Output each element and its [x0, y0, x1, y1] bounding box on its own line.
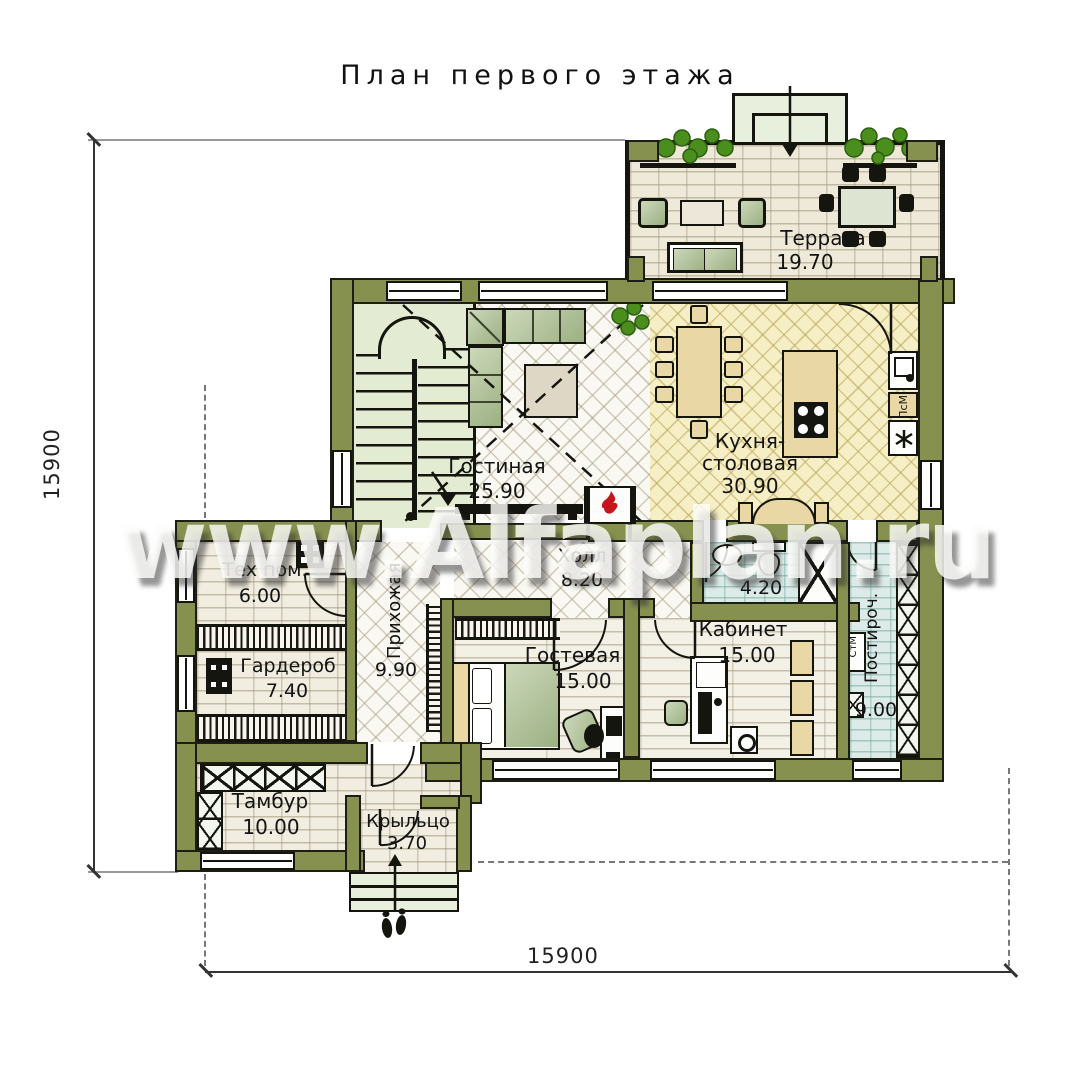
room-label-porch: Крыльцо [358, 812, 458, 832]
window [200, 852, 295, 870]
page-title: План первого этажа [340, 60, 739, 91]
fridge [888, 420, 918, 456]
entry-arrow-icon [386, 852, 404, 912]
room-label-kitchen-line1: Кухня- [675, 430, 825, 452]
wall-guest-study [623, 598, 640, 758]
dishwasher-label: ПсМ [897, 395, 910, 419]
room-label-guest: Гостевая [505, 644, 640, 666]
study-desk [690, 656, 728, 744]
terrace-pillar [920, 256, 938, 282]
wall-porch-west [345, 795, 361, 872]
terrace-pillar [627, 140, 659, 162]
room-label-wardrobe: Гардероб [232, 656, 344, 677]
terrace-loveseat [667, 242, 743, 273]
window [492, 760, 620, 780]
room-area-hallway: 9.90 [365, 660, 427, 681]
dimension-line-bottom [205, 971, 1012, 973]
chair [655, 336, 674, 353]
tambour-shelving [200, 764, 326, 792]
room-area-study: 15.00 [706, 644, 788, 666]
fridge-icon [894, 429, 914, 449]
watermark: www.Alfaplan.ru [118, 488, 994, 601]
wardrobe-closet [197, 624, 345, 651]
chair [655, 386, 674, 403]
guest-closet [455, 618, 560, 640]
room-area-guest: 15.00 [542, 670, 624, 692]
plant-icon [652, 118, 738, 168]
dishwasher: ПсМ [888, 392, 918, 418]
room-area-wardrobe: 7.40 [252, 681, 322, 702]
extension-line-top [88, 139, 625, 141]
room-label-terrace: Терраса [757, 227, 889, 249]
terrace-armchair [638, 198, 668, 228]
floor-plan-canvas: План первого этажа 15900 15900 [0, 0, 1080, 1080]
dimension-label-bottom: 15900 [527, 944, 599, 968]
room-label-kitchen-line2: столовая [675, 452, 825, 474]
extension-dashed-left-lower [204, 874, 206, 966]
study-cabinet [790, 720, 814, 756]
study-cabinet [790, 680, 814, 716]
wall-porch-north [420, 795, 460, 809]
chair [724, 361, 743, 378]
wardrobe-closet [197, 714, 345, 742]
door-arc-terrace [833, 302, 898, 360]
chair [655, 361, 674, 378]
terrace-armchair [738, 198, 766, 228]
room-label-tambour: Тамбур [215, 790, 325, 812]
window [386, 281, 462, 301]
window [650, 760, 776, 780]
dimension-label-left: 15900 [40, 428, 64, 500]
guest-desk-chair [584, 724, 604, 748]
window [652, 281, 788, 301]
chair [899, 194, 914, 212]
terrace-coffee-table [680, 200, 724, 226]
door-arc-tambour [370, 744, 416, 790]
wall-guest-west [440, 598, 454, 758]
room-label-living: Гостиная [437, 455, 557, 477]
dimension-line-left [93, 140, 95, 873]
roof-overhang-dashed-line [478, 861, 1008, 863]
dresser [206, 658, 232, 694]
chair [690, 305, 708, 324]
chair [724, 336, 743, 353]
window [177, 655, 195, 712]
room-area-laundry: 9.00 [848, 700, 904, 721]
wall-guest-north [440, 598, 552, 618]
study-chair [664, 700, 688, 726]
terrace-dining-table [838, 186, 896, 228]
terrace-pillar [906, 140, 938, 162]
chair [724, 386, 743, 403]
room-area-terrace: 19.70 [760, 251, 850, 273]
footprints-icon [376, 908, 412, 942]
terrace-pillar [627, 256, 645, 282]
wall-tambour-north [175, 742, 368, 764]
study-safe [730, 726, 758, 754]
dining-table [676, 326, 722, 418]
extension-line-bottom-left [88, 871, 178, 873]
room-area-tambour: 10.00 [230, 816, 312, 838]
porch-steps [349, 872, 459, 912]
study-cabinet [790, 640, 814, 676]
room-label-study: Кабинет [678, 618, 808, 640]
chair [819, 194, 834, 212]
section-arrow-icon [779, 86, 801, 158]
room-area-porch: 3.70 [372, 834, 442, 854]
window [478, 281, 608, 301]
extension-dashed-right [1008, 768, 1010, 966]
window [852, 760, 902, 780]
